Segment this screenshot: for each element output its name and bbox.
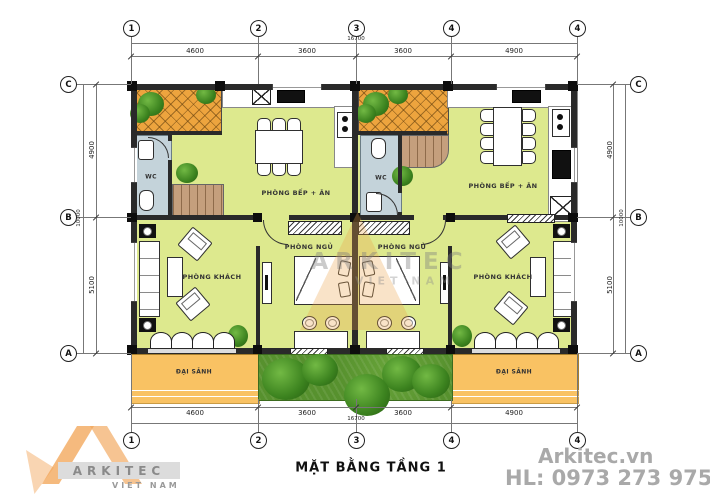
floor-plan-sheet: PHÒNG BẾP + ĂN PHÒNG BẾP + ĂN WC WC PHÒN… (0, 0, 710, 504)
column (446, 213, 455, 222)
kitchen-sink-icon (512, 90, 541, 103)
grid-bubble-A: A (60, 345, 77, 362)
dim-bottom-total: 16700 (347, 416, 365, 422)
chair-icon (480, 123, 494, 136)
wall-terrace-left (131, 131, 222, 135)
speaker-icon (139, 318, 156, 332)
grid-bubble-1: 1 (123, 20, 140, 37)
window-icon (131, 147, 137, 183)
hotline: HL: 0973 273 975 (505, 466, 710, 490)
threshold (148, 349, 236, 353)
room-label-kitchen-right: PHÒNG BẾP + ĂN (469, 182, 538, 190)
wall-partition-left (256, 246, 260, 351)
grid-line (577, 84, 632, 85)
dim-right-total: 10000 (619, 209, 625, 227)
grid-bubble-4b: 4 (569, 20, 586, 37)
grid-bubble-4: 4 (443, 432, 460, 449)
dressing-table (366, 331, 420, 349)
window-icon (131, 242, 137, 302)
dim-top-3: 3600 (394, 47, 412, 55)
grid-bubble-A: A (630, 345, 647, 362)
room-label-wc-right: WC (375, 175, 387, 182)
chair-icon (522, 137, 536, 150)
grid-line (577, 354, 578, 432)
grid-line (577, 36, 578, 84)
room-label-porch-left: ĐẠI SẢNH (176, 369, 212, 376)
tree-icon (412, 364, 450, 398)
dim-line (613, 84, 614, 353)
grid-bubble-3: 3 (348, 20, 365, 37)
vent-hatched-icon (507, 214, 555, 223)
dim-left-1: 4900 (88, 141, 96, 159)
window-icon (272, 84, 322, 90)
wall-wc-left (168, 131, 172, 141)
chair-icon (480, 151, 494, 164)
chair-icon (480, 109, 494, 122)
grid-bubble-C: C (630, 76, 647, 93)
grid-line (451, 399, 452, 432)
column (215, 81, 225, 91)
dressing-table (294, 331, 348, 349)
grid-bubble-B: B (60, 209, 77, 226)
grid-line (76, 353, 131, 354)
grid-bubble-4: 4 (443, 20, 460, 37)
wardrobe (288, 221, 342, 235)
chair-icon (287, 163, 301, 176)
dim-bottom-3: 3600 (394, 409, 412, 417)
toilet-icon (139, 190, 154, 211)
grid-bubble-3: 3 (348, 432, 365, 449)
shrub-icon (452, 325, 472, 347)
grid-bubble-B: B (630, 209, 647, 226)
chair-icon (522, 151, 536, 164)
arkitec-logo: ARKITEC VIET NAM (20, 420, 210, 500)
dim-line (131, 43, 577, 44)
logo-band: ARKITEC (58, 462, 180, 479)
room-label-wc-left: WC (145, 174, 157, 181)
room-label-living-left: PHÒNG KHÁCH (183, 273, 242, 281)
chair-icon (257, 163, 271, 176)
dim-line (625, 84, 626, 353)
column (127, 81, 137, 91)
stove-icon (552, 109, 570, 137)
grid-line (577, 353, 632, 354)
dining-table (255, 130, 303, 164)
tree-icon (302, 354, 338, 386)
drawing-title: MẶT BẰNG TẦNG 1 (295, 461, 447, 476)
room-label-kitchen-left: PHÒNG BẾP + ĂN (262, 189, 331, 197)
plant-icon (176, 163, 198, 183)
dim-bottom-1: 4600 (186, 409, 204, 417)
grid-bubble-2: 2 (250, 20, 267, 37)
chair-icon (522, 123, 536, 136)
watermark-text: ARKITEC (310, 249, 469, 275)
chair-icon (522, 109, 536, 122)
column (253, 213, 262, 222)
grid-line (76, 84, 131, 85)
logo-subtext: VIET NAM (112, 481, 180, 490)
dim-top-4: 4900 (505, 47, 523, 55)
column (350, 81, 360, 91)
tv-cabinet (262, 262, 272, 304)
logo-text: ARKITEC (73, 464, 165, 478)
dim-bottom-2: 3600 (298, 409, 316, 417)
porch-step (131, 396, 260, 404)
wall-wc-right (398, 131, 402, 193)
dim-left-2: 5100 (88, 276, 96, 294)
wall-row-b (131, 215, 262, 220)
website-link[interactable]: Arkitec.vn (538, 444, 653, 468)
window-icon (496, 84, 546, 90)
toilet-icon (371, 138, 386, 159)
threshold (472, 349, 560, 353)
stairs-right (400, 135, 449, 168)
dining-table (493, 107, 522, 166)
speaker-icon (139, 224, 156, 238)
kitchen-sink-icon (277, 90, 305, 103)
chair-icon (480, 137, 494, 150)
chair-icon (272, 163, 286, 176)
wall-wc-left (168, 160, 172, 218)
stairs-left (172, 184, 224, 219)
grid-bubble-2: 2 (250, 432, 267, 449)
sofa (139, 241, 160, 317)
wall-terrace-right (358, 131, 447, 135)
grid-line (258, 399, 259, 432)
room-label-porch-right: ĐẠI SẢNH (496, 369, 532, 376)
speaker-icon (553, 318, 570, 332)
dim-bottom-4: 4900 (505, 409, 523, 417)
plant-icon (392, 166, 413, 186)
porch-step (451, 396, 579, 404)
window-icon (571, 147, 577, 183)
watermark-subtext: VIET NAM (355, 275, 455, 288)
tree-icon (344, 374, 390, 416)
grid-bubble-C: C (60, 76, 77, 93)
tree-icon (356, 104, 376, 123)
dim-right-1: 4900 (606, 141, 614, 159)
dim-top-2: 3600 (298, 47, 316, 55)
dim-line (83, 84, 84, 353)
dim-top-1: 4600 (186, 47, 204, 55)
speaker-icon (553, 224, 570, 238)
room-label-living-right: PHÒNG KHÁCH (474, 273, 533, 281)
fridge-icon (552, 150, 571, 179)
dim-right-2: 5100 (606, 276, 614, 294)
dim-line (96, 84, 97, 353)
window-icon (571, 242, 577, 302)
shaft-icon (252, 88, 271, 105)
coffee-table (167, 257, 183, 297)
grid-line (76, 217, 131, 218)
